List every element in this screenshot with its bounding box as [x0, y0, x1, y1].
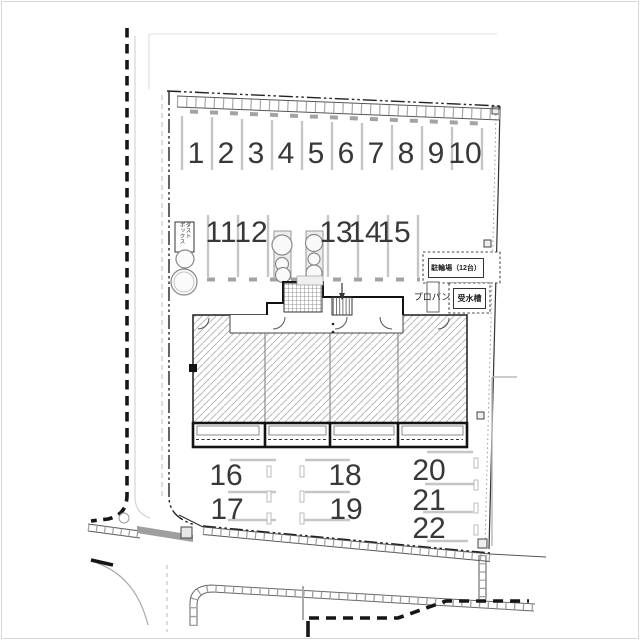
parking-space-17: 17	[210, 495, 243, 525]
dust-box-label: ダスト ボックス	[175, 222, 194, 252]
parking-space-19: 19	[329, 495, 362, 525]
parking-space-22: 22	[412, 514, 445, 544]
wall-marker	[189, 364, 197, 372]
parking-space-2: 2	[218, 139, 235, 169]
stair-note-box	[297, 276, 323, 285]
parking-space-18: 18	[328, 461, 361, 491]
bicycle-parking-label: 駐輪場（12台）	[428, 258, 484, 278]
parking-space-16: 16	[209, 461, 242, 491]
propane-label: プロパン	[411, 291, 453, 303]
parking-space-20: 20	[412, 456, 445, 486]
parking-space-1: 1	[188, 139, 205, 169]
water-tank-label: 受水槽	[453, 288, 486, 309]
planting-strips	[272, 231, 323, 283]
top-block-wall	[177, 96, 500, 124]
site-plan: 1 2 3 4 5 6 7 8 9 10 11 12 13 14 15 16 1…	[0, 0, 640, 640]
parking-space-7: 7	[368, 139, 385, 169]
parking-space-9: 9	[428, 139, 445, 169]
balconies	[193, 423, 467, 447]
site-plan-drawing	[0, 0, 640, 640]
parking-bottom-ticks	[267, 458, 478, 535]
parking-space-3: 3	[248, 139, 265, 169]
staircase-a	[284, 283, 322, 312]
parking-space-10: 10	[448, 139, 481, 169]
parking-space-15: 15	[377, 218, 410, 248]
parking-space-6: 6	[338, 139, 355, 169]
parking-space-11: 11	[205, 218, 236, 248]
parking-space-4: 4	[278, 139, 295, 169]
dust-box-label-line1: ダスト	[185, 222, 191, 252]
parking-space-5: 5	[308, 139, 325, 169]
parking-space-12: 12	[234, 218, 267, 248]
parking-space-8: 8	[398, 139, 415, 169]
